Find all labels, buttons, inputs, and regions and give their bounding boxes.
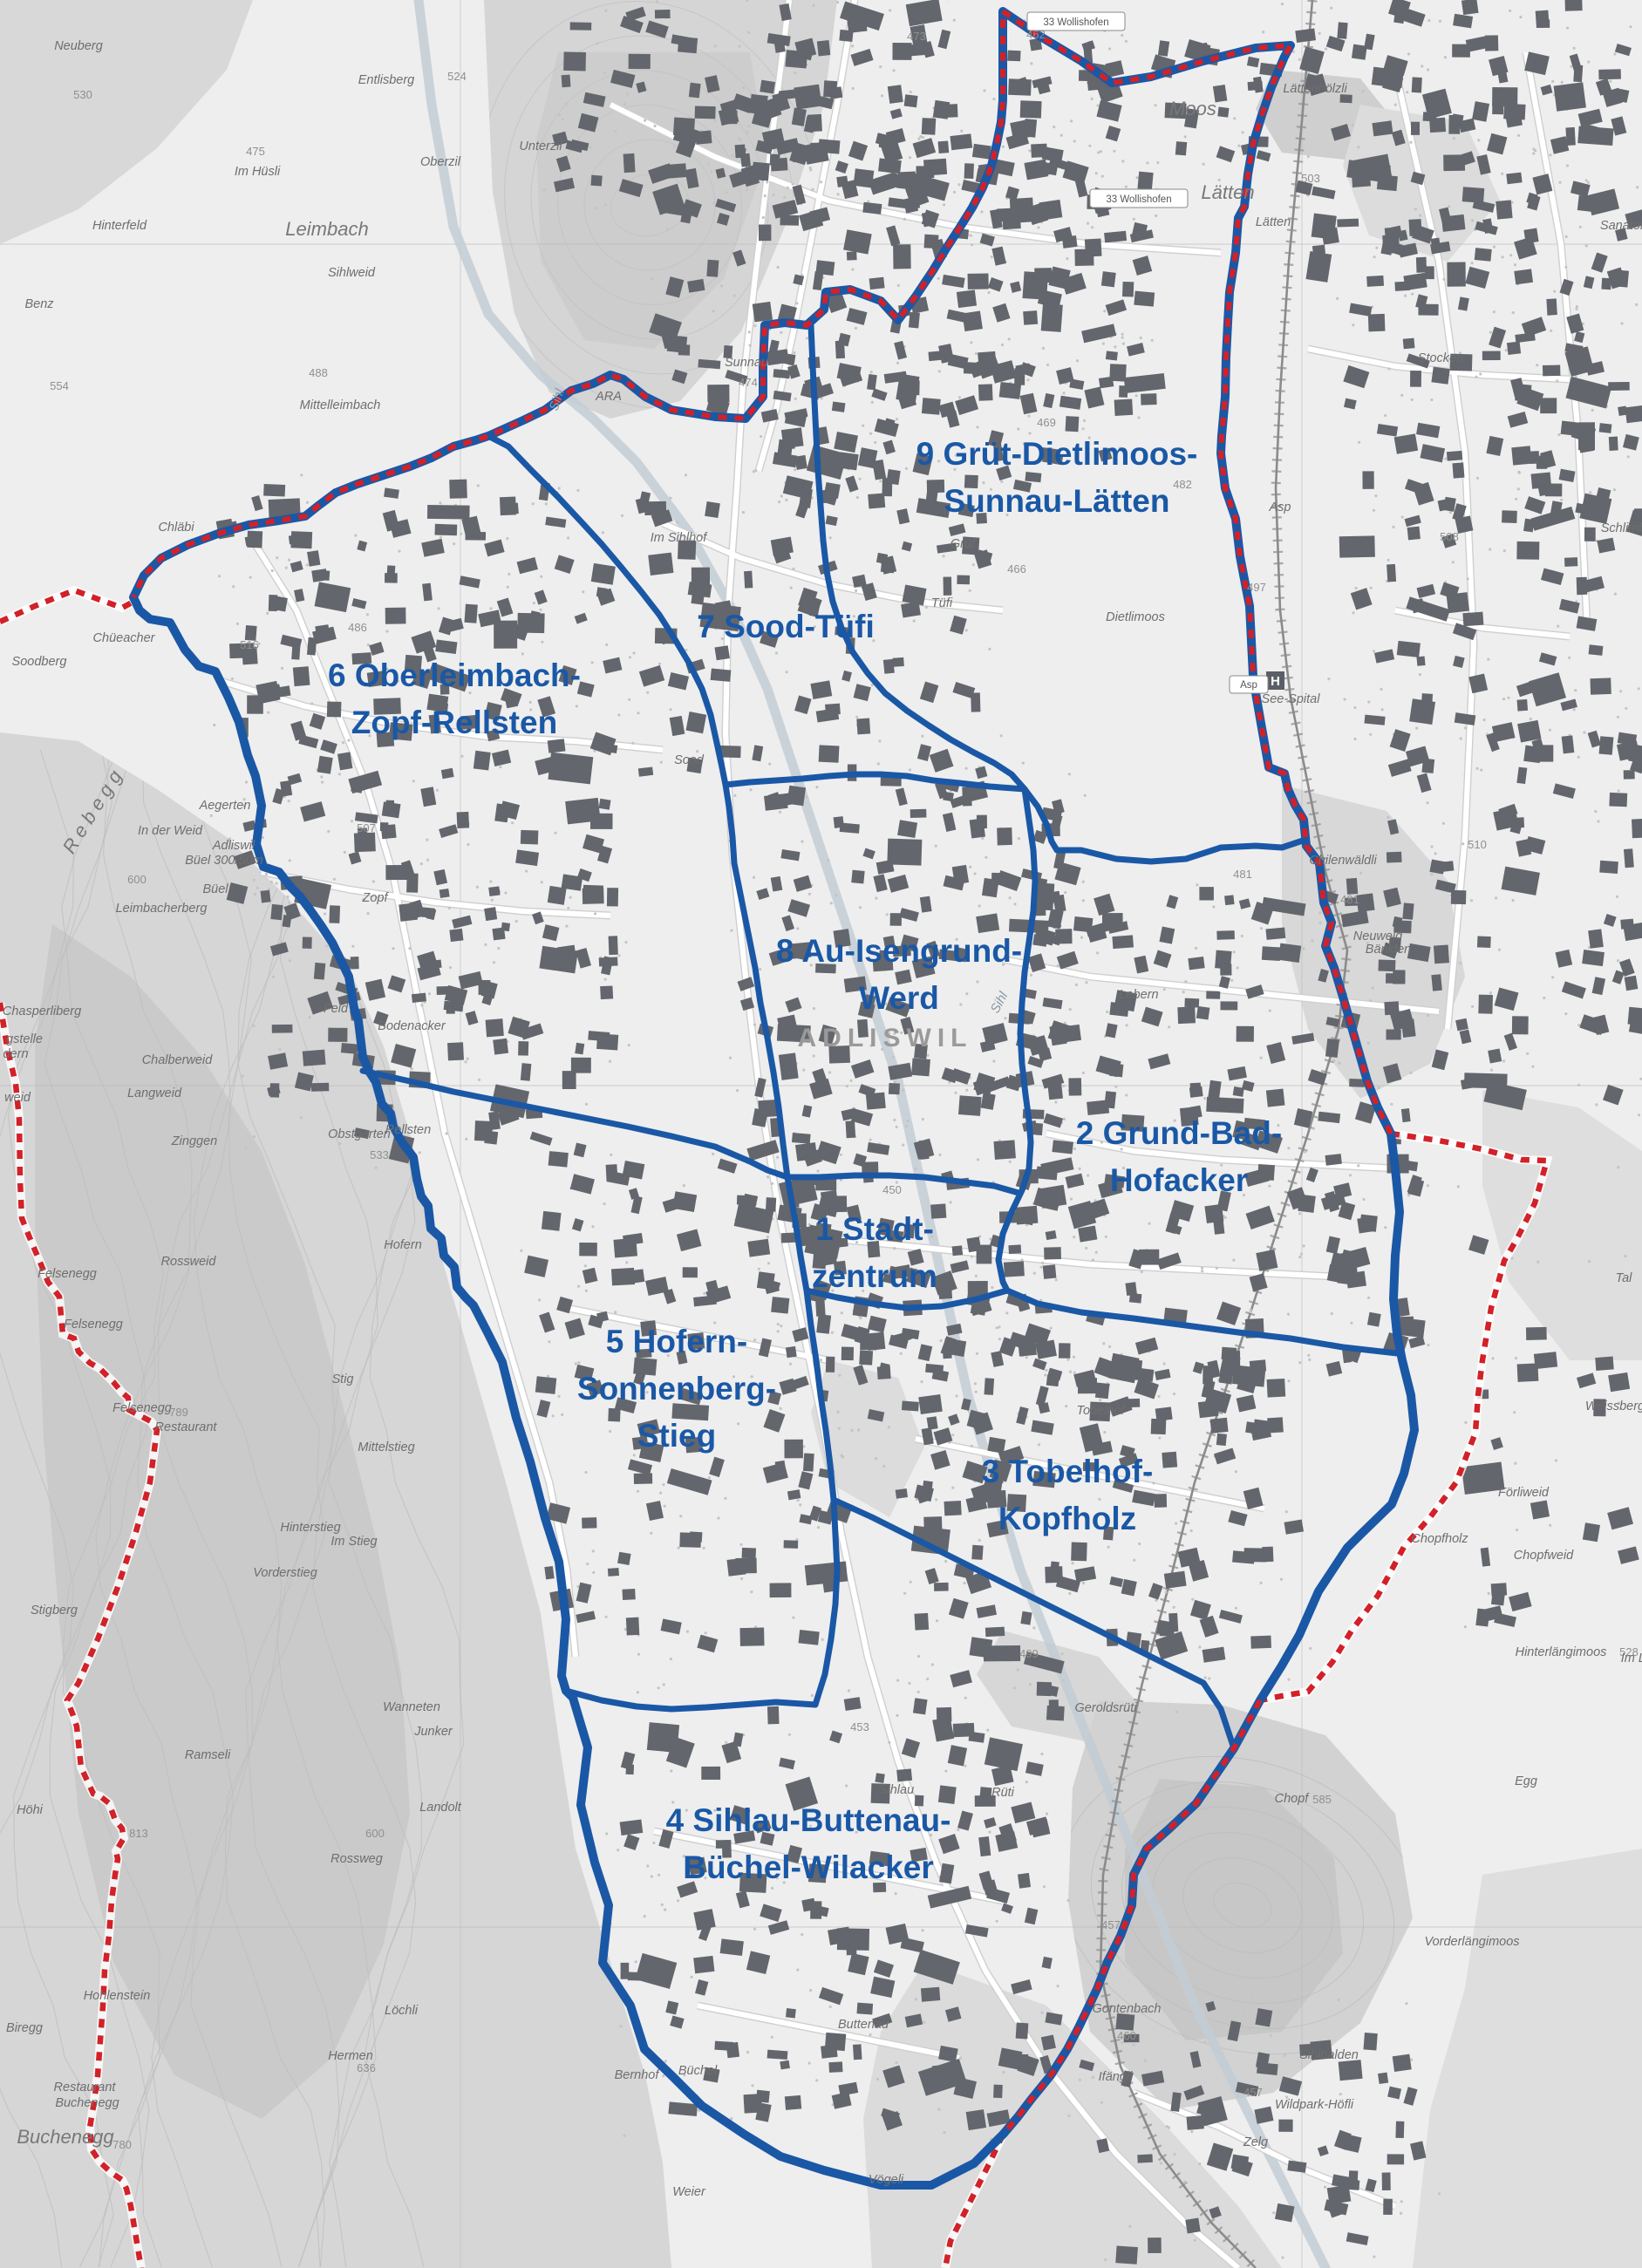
- place-label: Schlimberg: [1601, 521, 1642, 535]
- road-sign-label: 33 Wollishofen: [1106, 194, 1171, 205]
- place-label: Restaurant: [155, 1420, 218, 1434]
- place-label: Neuberg: [54, 39, 103, 53]
- place-label: Obstgarten: [328, 1127, 391, 1141]
- place-label: Chilenwäldli: [1309, 854, 1377, 868]
- place-label: Moos: [1169, 98, 1216, 119]
- road-sign-label: 33 Wollishofen: [1043, 17, 1108, 28]
- place-label: Buchenegg: [17, 2126, 114, 2148]
- place-label: Tüfi: [931, 596, 953, 610]
- elevation-label: 585: [1312, 1793, 1332, 1806]
- elevation-label: 499: [1019, 1647, 1039, 1660]
- elevation-label: 460: [1117, 2029, 1136, 2042]
- place-label: Hinterstieg: [280, 1521, 340, 1535]
- place-label: Soodberg: [12, 655, 67, 669]
- elevation-label: 503: [1301, 172, 1320, 185]
- place-label: Rellsten: [385, 1123, 431, 1137]
- place-label: Felsenegg: [37, 1267, 97, 1281]
- place-label: Langweid: [127, 1086, 182, 1100]
- elevation-label: 508: [1440, 530, 1459, 543]
- place-label: Unterzil: [519, 140, 562, 153]
- place-label: Stocken: [1418, 351, 1463, 365]
- place-label: Zinggen: [171, 1134, 217, 1148]
- elevation-label: 457: [1243, 2086, 1263, 2099]
- place-label: Sanatorium: [1600, 219, 1642, 233]
- elevation-label: 600: [127, 873, 146, 886]
- elevation-label: 486: [348, 621, 367, 634]
- place-label: Grüt: [950, 537, 976, 551]
- place-label: Löchli: [385, 2004, 419, 2018]
- place-label: Vögeli: [869, 2173, 904, 2187]
- place-label: Egg: [1515, 1774, 1537, 1788]
- place-label: Hinterlängimoos: [1516, 1645, 1607, 1659]
- elevation-label: 453: [850, 1720, 869, 1733]
- elevation-label: 533: [370, 1148, 389, 1161]
- place-label: Büel: [202, 882, 228, 896]
- place-label: Chopfholz: [1411, 1532, 1468, 1546]
- place-label: Büel 300/50m: [185, 854, 262, 868]
- place-label: Chopfweid: [1514, 1549, 1574, 1563]
- place-label: Biregg: [6, 2021, 43, 2035]
- place-label: Weissberg: [1585, 1400, 1642, 1413]
- place-label: Rossweg: [330, 1852, 383, 1866]
- place-label: Mittelleimbach: [300, 398, 381, 412]
- place-label: Rüti: [991, 1786, 1015, 1800]
- place-label: Leimbacherberg: [116, 902, 208, 916]
- place-label: ARA: [595, 390, 622, 404]
- elevation-label: 600: [365, 1827, 385, 1840]
- place-label: weid: [4, 1091, 31, 1105]
- place-label: Ifängli: [1099, 2070, 1133, 2084]
- place-label: Restaurant: [54, 2081, 117, 2094]
- place-label: Entlisberg: [358, 73, 414, 87]
- place-label: Stig: [332, 1372, 354, 1386]
- hospital: H: [1266, 671, 1284, 690]
- place-label: Zelg: [1243, 2135, 1268, 2149]
- place-label: Chüeacher: [93, 631, 156, 645]
- elevation-label: 636: [357, 2061, 376, 2074]
- place-label: Buchenegg: [55, 2096, 119, 2110]
- elevation-label: 488: [309, 366, 328, 379]
- place-label: Sood: [674, 753, 705, 767]
- map-canvas: H33 Wollishofen33 WollishofenAspNeuberg5…: [0, 0, 1642, 2268]
- elevation-label: 482: [1173, 478, 1192, 491]
- elevation-label: 473: [907, 30, 926, 43]
- elevation-label: 481: [1233, 868, 1252, 881]
- place-label: Dietlimoos: [1106, 610, 1165, 624]
- city-name-label: ADLISWIL: [798, 1024, 973, 1052]
- place-label: Sihlau: [879, 1783, 914, 1797]
- place-label: Förliweid: [1498, 1486, 1550, 1500]
- elevation-label: 507: [357, 821, 376, 834]
- place-label: Vorderstieg: [253, 1566, 317, 1580]
- elevation-label: 554: [50, 379, 69, 392]
- elevation-label: 462: [1026, 28, 1046, 41]
- place-label: Im Stieg: [330, 1535, 377, 1549]
- place-label: Mittelstieg: [358, 1440, 414, 1454]
- place-label: Hohlenstein: [84, 1989, 151, 2003]
- place-label: Feld: [324, 1002, 349, 1016]
- place-label: Rossweid: [161, 1255, 217, 1269]
- elevation-label: 789: [169, 1406, 188, 1419]
- place-label: Hinterfeld: [92, 219, 147, 233]
- place-label: Oberzil: [420, 155, 461, 169]
- place-label: Adliswil: [212, 839, 255, 853]
- place-label: Höhi: [17, 1803, 44, 1817]
- place-label: Lätten: [1201, 181, 1254, 203]
- place-label: Vorderlängimoos: [1424, 1935, 1519, 1949]
- place-label: Lebern: [1119, 988, 1158, 1002]
- elevation-label: 481: [1340, 893, 1359, 906]
- road-sign-label: Asp: [1240, 680, 1257, 691]
- hospital-symbol: H: [1271, 674, 1280, 689]
- city-label: ADLISWIL: [798, 1024, 973, 1052]
- elevation-label: 813: [129, 1827, 148, 1840]
- place-label: Lätten: [1256, 215, 1291, 229]
- elevation-label: 450: [882, 1183, 902, 1196]
- elevation-label: 474: [739, 376, 758, 389]
- district-label-7: 7 Sood-Tüfi: [697, 609, 874, 644]
- place-label: Landolt: [419, 1801, 462, 1815]
- place-label: Bernhof: [615, 2068, 661, 2082]
- place-label: Ramseli: [185, 1748, 231, 1762]
- place-label: Bänklen: [1366, 943, 1411, 957]
- place-label: Leimbach: [285, 218, 368, 240]
- place-label: Aegerten: [199, 799, 251, 813]
- place-label: Felsenegg: [64, 1318, 123, 1332]
- place-label: Chopf: [1275, 1792, 1311, 1806]
- place-label: Geroldsrüti: [1075, 1701, 1138, 1715]
- elevation-label: 469: [1037, 416, 1056, 429]
- place-label: Im Sihlhof: [651, 531, 708, 545]
- place-label: Asp: [1269, 501, 1291, 514]
- place-label: Junker: [413, 1725, 453, 1739]
- place-label: Gontenbach: [1092, 2002, 1161, 2016]
- elevation-label: 530: [73, 88, 92, 101]
- place-label: Im Hüsli: [235, 165, 281, 179]
- place-label: dern: [3, 1047, 28, 1061]
- elevation-label: 466: [1007, 562, 1026, 576]
- place-label: Buttenau: [838, 2018, 889, 2032]
- place-label: Tal: [1616, 1271, 1633, 1285]
- elevation-label: 457: [1101, 1918, 1121, 1931]
- place-label: Wildpark-Höfli: [1275, 2098, 1354, 2112]
- place-label: Neuweid: [1353, 930, 1403, 943]
- place-label: Sihlweid: [328, 266, 376, 280]
- place-label: See-Spital: [1262, 692, 1321, 706]
- place-label: Bodenacker: [378, 1019, 446, 1033]
- place-label: Hofern: [384, 1238, 422, 1252]
- place-label: Felsenegg: [112, 1401, 172, 1415]
- elevation-label: 510: [1468, 838, 1487, 851]
- adliswil-district-map: H33 Wollishofen33 WollishofenAspNeuberg5…: [0, 0, 1642, 2268]
- place-label: Wanneten: [383, 1700, 440, 1714]
- place-label: Chalberweid: [142, 1053, 214, 1067]
- elevation-label: 516: [240, 638, 259, 651]
- place-label: Lättenhölzli: [1283, 82, 1347, 96]
- place-label: Sunnau: [725, 356, 768, 370]
- elevation-label: 475: [246, 145, 265, 158]
- place-label: In der Weid: [138, 824, 203, 838]
- place-label: Chasperliberg: [3, 1005, 81, 1018]
- place-label: Sihlhalden: [1299, 2048, 1359, 2062]
- place-label: Im Loorain: [1621, 1652, 1642, 1665]
- elevation-label: 497: [1247, 581, 1266, 594]
- place-label: Büchel: [678, 2064, 718, 2078]
- elevation-label: 524: [447, 70, 467, 83]
- place-label: Benz: [24, 297, 54, 311]
- place-label: Weier: [672, 2185, 706, 2199]
- place-label: Chläbi: [158, 521, 194, 535]
- elevation-label: 780: [112, 2138, 132, 2151]
- place-label: Zopf: [361, 891, 389, 905]
- place-label: gstelle: [6, 1032, 43, 1046]
- place-label: Tobelhof: [1076, 1404, 1126, 1418]
- place-label: Stigberg: [31, 1604, 78, 1618]
